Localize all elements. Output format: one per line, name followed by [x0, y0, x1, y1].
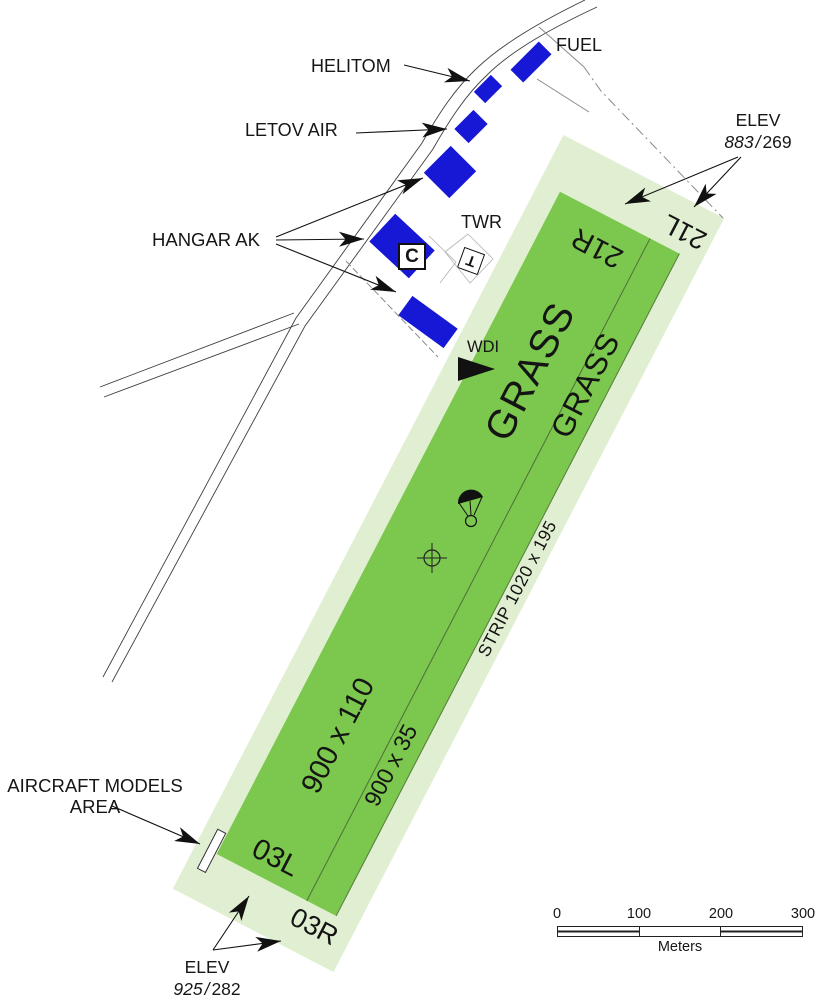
road-branch-bottom-line [104, 324, 299, 397]
scale-tick-200: 200 [709, 906, 733, 922]
helitom-arrow [404, 65, 470, 81]
scale-tick-100: 100 [627, 906, 651, 922]
grass-runway-area [217, 192, 680, 916]
twr-label: TWR [461, 212, 502, 233]
hangar-ak-arrow-1 [276, 239, 364, 240]
elev-bottom-callout: ELEV 925/282 [147, 956, 267, 1000]
scale-tick-300: 300 [791, 906, 815, 922]
scale-unit-label: Meters [658, 939, 702, 955]
fuel-building [510, 41, 551, 82]
elev-top-arrow-21l [694, 157, 741, 207]
scale-bar-graphic [557, 926, 803, 937]
elev-bottom-arrow-03r [213, 941, 281, 950]
hangar-ak-label: HANGAR AK [152, 229, 260, 251]
scale-bar: 0 100 200 300 Meters [553, 906, 815, 958]
elev-bottom-values: 925/282 [147, 978, 267, 1000]
hangar-ak-arrow-3 [276, 244, 396, 292]
tower-symbol-letter: T [464, 251, 478, 270]
letov-air-building [454, 110, 487, 143]
letov-air-label: LETOV AIR [245, 120, 338, 141]
hangar-ak-building-3 [398, 296, 457, 348]
hangar-plot-line [429, 236, 456, 283]
wdi-label: WDI [467, 338, 499, 357]
road-branch-top-line [100, 313, 294, 387]
tower-symbol: T [457, 247, 485, 275]
elev-top-callout: ELEV 883/269 [699, 109, 817, 153]
hangar-c-letter: C [405, 246, 419, 268]
letov-air-arrow [356, 129, 447, 133]
helitom-building [474, 75, 502, 103]
elev-bottom-title: ELEV [147, 956, 267, 978]
elev-top-values: 883/269 [699, 131, 817, 153]
scale-tick-0: 0 [553, 906, 561, 922]
hangar-c-marker: C [398, 243, 426, 270]
airfield-strip: GRASS GRASS 900 x 110 900 x 35 STRIP 102… [173, 135, 724, 972]
hangar-ak-building-1 [424, 146, 476, 198]
aerodrome-chart: GRASS GRASS 900 x 110 900 x 35 STRIP 102… [0, 0, 818, 1000]
helitom-label: HELITOM [311, 56, 391, 77]
elev-top-title: ELEV [699, 109, 817, 131]
aircraft-models-area-label: AIRCRAFT MODELS AREA [0, 775, 190, 817]
fuel-plot-line-2 [537, 79, 589, 112]
fuel-label: FUEL [556, 35, 602, 56]
